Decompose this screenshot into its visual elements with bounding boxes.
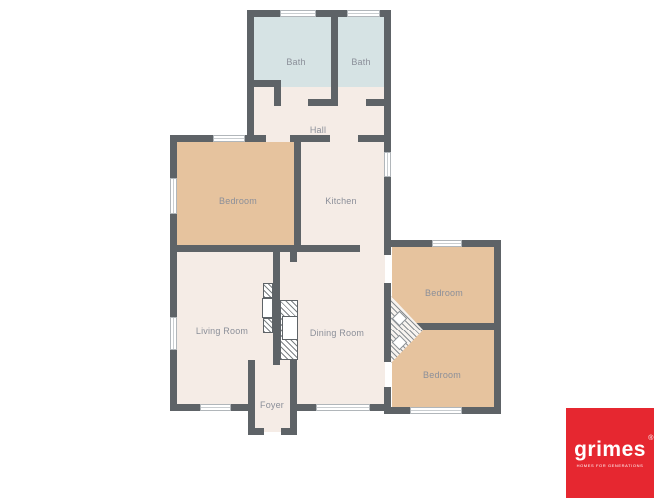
wall [331, 17, 338, 106]
fireplace-hatch [263, 283, 273, 298]
room-label-bedroom-3: Bedroom [423, 370, 461, 380]
wall [384, 407, 410, 414]
window [170, 178, 177, 214]
wall [247, 80, 281, 87]
wall [384, 283, 391, 362]
fireplace-firebox [282, 316, 298, 340]
room-label-bath-2: Bath [351, 57, 370, 67]
floorplan: Bath Bath Hall Bedroom Kitchen Living Ro… [0, 0, 668, 501]
wall [247, 10, 254, 142]
wall [248, 360, 255, 435]
wall [281, 428, 297, 435]
room-label-kitchen: Kitchen [325, 196, 356, 206]
window [347, 10, 380, 17]
wall [231, 404, 255, 411]
room-label-living: Living Room [196, 326, 248, 336]
wall [290, 360, 297, 435]
room-label-bedroom-1: Bedroom [219, 196, 257, 206]
registered-trademark-icon: ® [648, 435, 654, 442]
wall [366, 99, 391, 106]
wall [170, 135, 177, 178]
wall [290, 135, 330, 142]
room-label-bath-1: Bath [286, 57, 305, 67]
agency-logo: grimes® HOMES FOR GENERATIONS [566, 408, 654, 498]
wall [177, 135, 213, 142]
wall [308, 99, 338, 106]
window [280, 10, 316, 17]
wall [170, 214, 177, 317]
room-label-foyer: Foyer [260, 400, 284, 410]
window [432, 240, 462, 247]
wall [273, 245, 280, 365]
wall [297, 404, 316, 411]
window [316, 404, 370, 411]
window [410, 407, 462, 414]
agency-logo-wordmark: grimes® [574, 439, 646, 460]
window [213, 135, 245, 142]
agency-logo-tagline: HOMES FOR GENERATIONS [577, 463, 644, 468]
window [170, 317, 177, 350]
window [200, 404, 231, 411]
wall [170, 350, 177, 411]
wall [248, 428, 264, 435]
fireplace-hatch [263, 318, 273, 333]
wall [358, 135, 384, 142]
wall [494, 240, 501, 414]
wall [294, 142, 301, 252]
room-label-bedroom-2: Bedroom [425, 288, 463, 298]
wall [177, 404, 200, 411]
wall [384, 240, 432, 247]
window [384, 152, 391, 177]
room-label-hall: Hall [310, 125, 326, 135]
wall [290, 252, 297, 262]
wall [274, 87, 281, 106]
wall [245, 135, 266, 142]
wall [370, 404, 385, 411]
room-bedroom-2 [392, 247, 494, 323]
wall [177, 245, 360, 252]
room-foyer [255, 360, 290, 432]
room-label-dining: Dining Room [310, 328, 364, 338]
wall [462, 407, 501, 414]
fireplace-firebox [262, 298, 273, 318]
wall [384, 10, 391, 152]
